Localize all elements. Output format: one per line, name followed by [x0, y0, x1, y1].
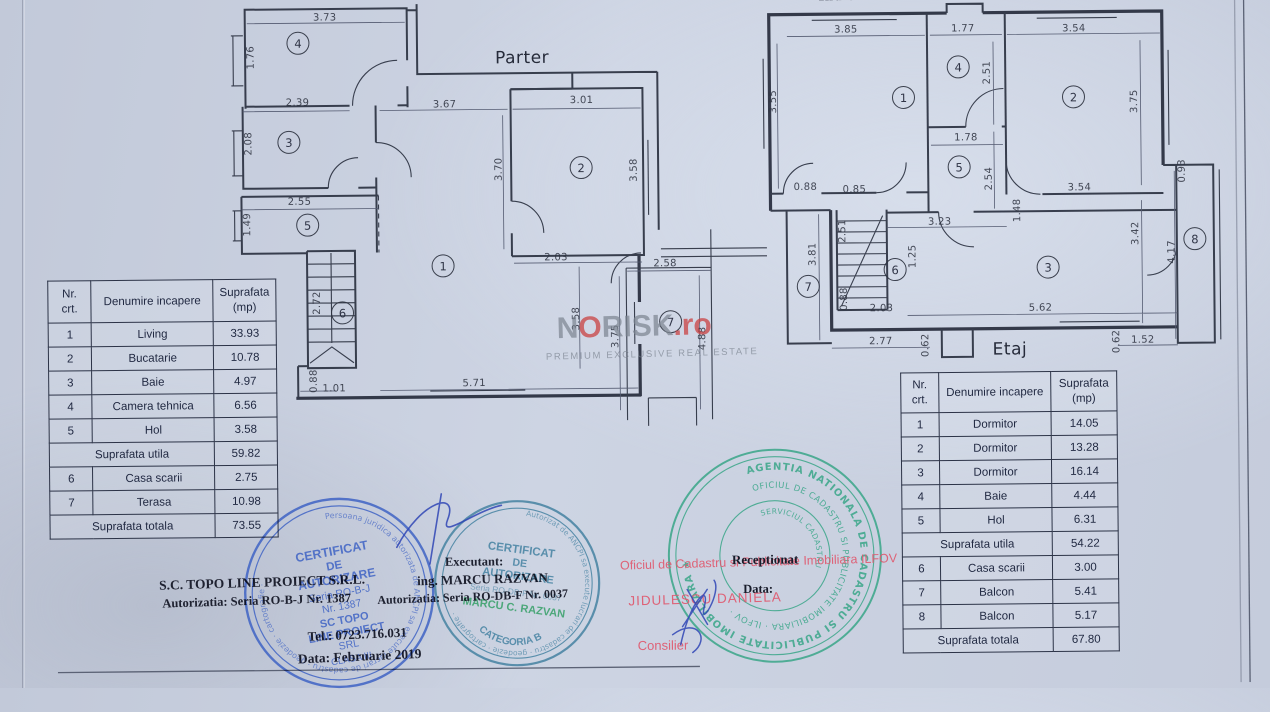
table-row: 3Baie4.97	[49, 369, 277, 395]
table-row: 1Dormitor14.05	[901, 411, 1117, 437]
room-number: 5	[948, 155, 971, 178]
table-row: 5Hol6.31	[902, 507, 1118, 533]
dimension-label: 5.71	[462, 378, 486, 389]
table-header-nr: Nr.crt.	[48, 281, 92, 323]
svg-text:SRL: SRL	[338, 637, 360, 653]
dimension-label: 1.77	[951, 23, 975, 34]
table-row: 5Hol3.58	[49, 417, 277, 443]
table-subtotal-row: Suprafata utila54.22	[902, 531, 1118, 557]
room-number: 8	[1183, 227, 1206, 250]
dimension-label: 5.62	[1029, 303, 1053, 314]
room-number: 2	[1062, 85, 1085, 108]
dimension-label: 4.17	[1166, 240, 1177, 264]
dimension-label: 2.51	[982, 61, 993, 85]
dimension-label: 2.03	[870, 303, 894, 314]
dimension-label: 3.01	[570, 95, 594, 106]
table-row: 4Camera tehnica6.56	[49, 393, 277, 419]
dimension-label: 1.01	[322, 383, 346, 394]
dimension-label: 3.73	[313, 12, 337, 23]
table-row: 3Dormitor16.14	[901, 459, 1117, 485]
table-total-row: Suprafata totala67.80	[903, 627, 1119, 653]
scanned-sheet: Individuala Parter Etaj 1 2 3 4 5 6 7 3.…	[0, 0, 1270, 694]
dimension-label: 2.58	[653, 258, 677, 269]
table-header-area: Suprafata(mp)	[1051, 371, 1117, 412]
table-header-area: Suprafata(mp)	[213, 279, 276, 322]
dimension-label: 0.85	[843, 184, 867, 195]
dimension-label: 0.62	[920, 333, 931, 357]
parter-area-table: Nr.crt. Denumire incapere Suprafata(mp) …	[47, 278, 278, 539]
dimension-label: 0.88	[309, 369, 320, 393]
table-header-name: Denumire incapere	[91, 280, 213, 323]
floor-label-parter: Parter	[495, 48, 549, 69]
dimension-label: 3.23	[928, 217, 952, 228]
dimension-label: 1.52	[1131, 335, 1155, 346]
table-subtotal-row: Suprafata utila59.82	[49, 441, 277, 467]
dimension-label: 3.85	[834, 24, 858, 35]
dimension-label: 3.55	[768, 90, 779, 114]
dimension-label: 0.88	[839, 287, 850, 311]
dimension-label: 1.76	[245, 46, 256, 70]
dimension-label: 0.88	[794, 182, 818, 193]
room-number: 2	[570, 156, 593, 179]
table-row: 6Casa scarii3.00	[902, 555, 1118, 581]
dimension-label: 1.48	[1012, 199, 1023, 223]
watermark-part: RISK	[601, 309, 674, 344]
dimension-label: 2.77	[869, 336, 893, 347]
table-row: 7Balcon5.41	[903, 579, 1119, 605]
room-number: 6	[884, 258, 907, 281]
room-number: 4	[947, 55, 970, 78]
table-row: 6Casa scarii2.75	[50, 465, 278, 491]
room-number: 3	[277, 131, 300, 154]
dimension-label: 2.03	[544, 252, 568, 263]
dimension-label: 3.58	[629, 158, 640, 182]
watermark-part: N	[556, 312, 579, 346]
dimension-label: 3.67	[433, 99, 457, 110]
dimension-label: 3.54	[1062, 23, 1086, 34]
table-header-nr: Nr.crt.	[901, 373, 939, 413]
etaj-area-table: Nr.crt. Denumire incapere Suprafata(mp) …	[900, 370, 1120, 653]
dimension-label: 0.93	[1177, 159, 1188, 183]
table-row: 2Dormitor13.28	[901, 435, 1117, 461]
dimension-label: 2.51	[837, 219, 848, 243]
plan-title-fragment: Individuala	[818, 0, 898, 5]
watermark-o: O	[578, 311, 602, 345]
dimension-label: 2.55	[288, 197, 312, 208]
dimension-label: 1.78	[954, 132, 978, 143]
room-number: 3	[1037, 255, 1060, 278]
watermark-tld: .ro	[673, 308, 712, 342]
table-row: 1Living33.93	[48, 321, 276, 347]
consilier-signature	[652, 564, 743, 660]
room-number: 6	[331, 301, 354, 324]
dimension-label: 3.75	[1129, 89, 1140, 113]
dimension-label: 3.54	[1068, 182, 1092, 193]
watermark-brand: NORISK.ro	[556, 308, 712, 346]
dimension-label: 3.42	[1130, 221, 1141, 245]
dimension-label: 3.81	[807, 243, 818, 267]
table-header-name: Denumire incapere	[938, 372, 1051, 413]
room-number: 5	[296, 214, 319, 237]
floor-label-etaj: Etaj	[993, 339, 1028, 359]
dimension-label: 2.72	[312, 291, 323, 315]
room-number: 4	[286, 32, 309, 55]
dimension-label: 0.62	[1111, 330, 1122, 354]
dimension-label: 2.54	[984, 167, 995, 191]
table-row: 2Bucatarie10.78	[48, 345, 276, 371]
executant-signature	[381, 481, 552, 573]
room-number: 1	[892, 86, 915, 109]
table-row: 4Baie4.44	[902, 483, 1118, 509]
dimension-label: 2.08	[243, 132, 254, 156]
dimension-label: 2.39	[286, 98, 310, 109]
room-number: 1	[431, 254, 454, 277]
dimension-label: 3.70	[494, 158, 505, 182]
table-row: 8Balcon5.17	[903, 603, 1119, 629]
dimension-label: 1.49	[242, 213, 253, 237]
dimension-label: 1.25	[907, 245, 918, 269]
room-number: 7	[797, 275, 820, 298]
